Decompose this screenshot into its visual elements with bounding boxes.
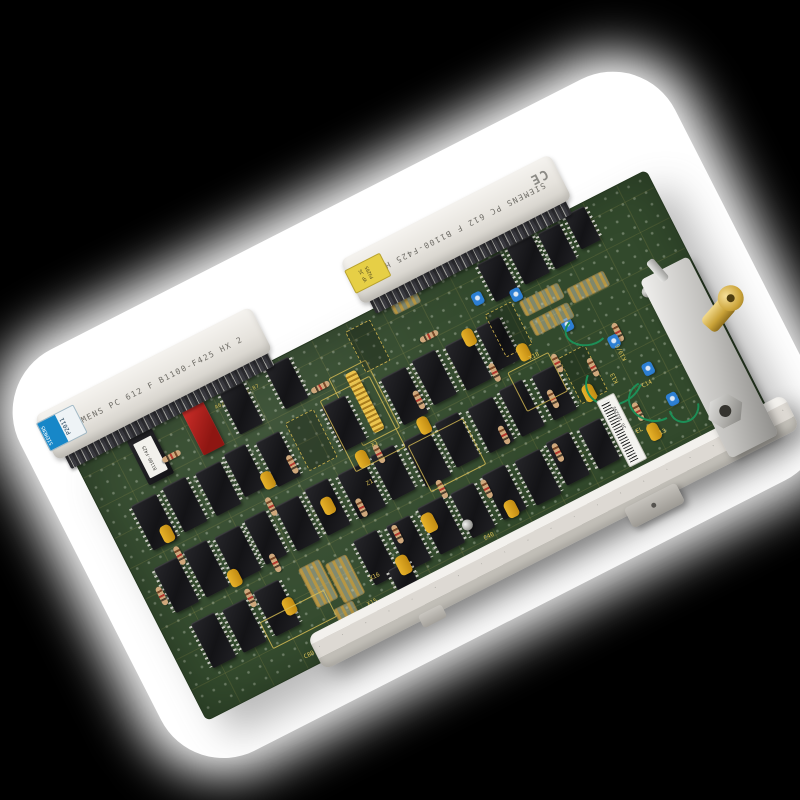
ic-socket — [345, 319, 391, 373]
circuit-board: B1100-F425 A62-C742-02-87 X1Z1X14X15X16C… — [74, 171, 776, 720]
trimmer — [470, 290, 486, 307]
resistor — [310, 380, 331, 394]
silkscreen-ref: EL — [635, 426, 645, 436]
resistor — [161, 449, 182, 463]
photo-stage: B1100-F425 A62-C742-02-87 X1Z1X14X15X16C… — [0, 0, 800, 800]
ce-mark: CE — [527, 165, 551, 187]
jumper-block — [566, 270, 611, 304]
resistor — [419, 329, 440, 343]
